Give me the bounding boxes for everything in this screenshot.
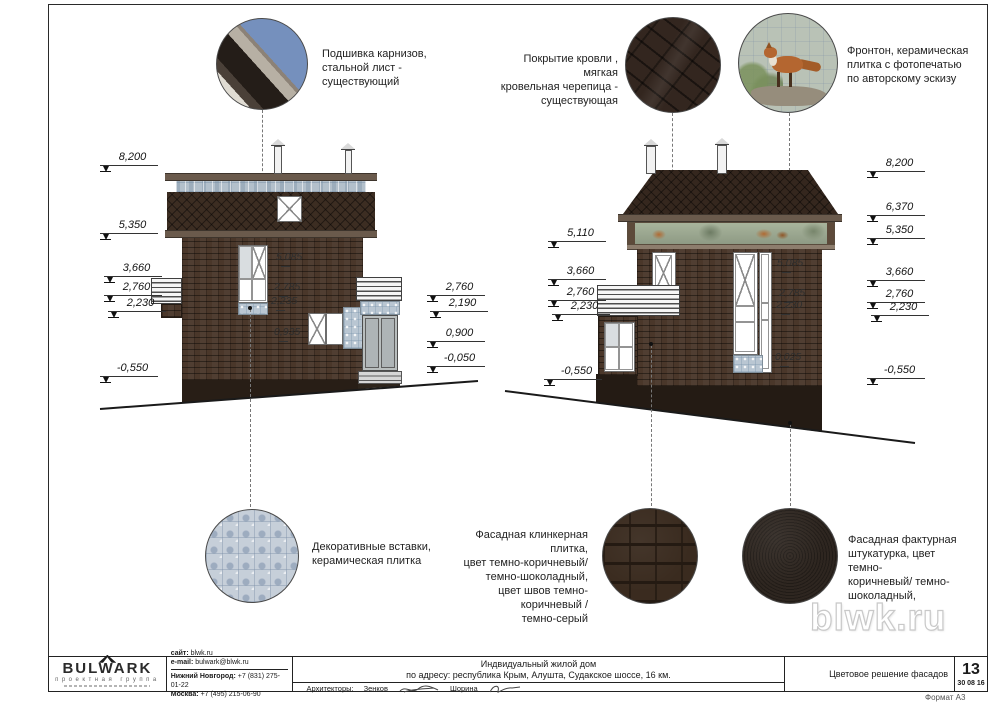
decor-tiles-photo-circle [205, 509, 299, 603]
rf-chimney-cap [715, 138, 729, 144]
elevation-value: -0,550 [544, 365, 602, 380]
door-leaf [381, 318, 395, 368]
elevation-value: 5,110 [548, 227, 606, 242]
elevation-mark: 8,200 [867, 157, 925, 172]
leader-dot [649, 342, 653, 346]
mural-end-strip [628, 223, 635, 244]
elevation-mark: -0,550 [867, 364, 925, 379]
logo-cell: BULWARK проектная группа [49, 657, 167, 691]
elevation-value: 2,760 [548, 286, 606, 301]
window-pane [605, 347, 619, 370]
elevation-mark: 2,760 [427, 281, 485, 296]
rf-tall-window [733, 252, 758, 355]
window-pane [619, 347, 633, 370]
leader-stucco [790, 424, 791, 506]
elevation-mark: 2,190 [430, 297, 488, 312]
elevation-mark: -0,550 [544, 365, 602, 380]
rf-decor-tile-panel [733, 355, 763, 373]
lf-center-window [238, 245, 268, 303]
elevation-mark: 2,230 [871, 301, 929, 316]
elevation-value: 3,660 [104, 262, 162, 277]
lf-window-sill-tile-panel [238, 303, 268, 315]
logo-subtitle: проектная группа [55, 677, 160, 683]
callout-roofing-text: Покрытие кровли , мягкая кровельная чере… [498, 52, 618, 108]
sheet-title-cell: Цветовое решение фасадов [785, 657, 955, 691]
lf-roof-pipe-cap [271, 139, 285, 145]
window-tile-insert [761, 303, 769, 320]
lf-entrance-railing [356, 277, 402, 301]
elevation-mark: 2,760 [104, 281, 162, 296]
site-value: blwk.ru [191, 650, 213, 657]
contact-site: сайт: blwk.ru [171, 649, 288, 658]
sheet-title: Цветовое решение фасадов [829, 669, 948, 679]
leader-dot [248, 306, 252, 310]
lf-roof-pipe [274, 146, 282, 174]
elevation-mark: 6,370 [867, 201, 925, 216]
site-label: сайт: [171, 650, 189, 657]
logo-text: BULWARK [62, 660, 152, 677]
clinker-brick-photo-circle [602, 508, 698, 604]
format-label: Формат А3 [925, 693, 965, 702]
elevation-value: 2,230 [108, 297, 166, 312]
mural-end-strip [827, 223, 834, 244]
stucco-photo-circle [742, 508, 838, 604]
lf-upper-band [167, 192, 375, 230]
fox-head [764, 47, 777, 58]
lf-entrance-door [362, 315, 398, 371]
callout-clinker-text: Фасадная клинкерная плитка, цвет темно-к… [458, 528, 588, 627]
lf-roof-pipe-cap [341, 143, 355, 149]
elevation-value: 2,760 [427, 281, 485, 296]
door-leaf [365, 318, 379, 368]
project-cell: Индвидуальный жилой дом по адресу: респу… [293, 657, 786, 691]
msk-label: Москва: [171, 691, 199, 698]
elevation-value: -0,050 [427, 352, 485, 367]
rf-eaves-band [618, 214, 842, 222]
elevation-mark: 3,660 [548, 265, 606, 280]
rf-chimney [646, 146, 656, 174]
elevation-mark: 0,900 [427, 327, 485, 342]
inner-dimension: 2,230 [776, 300, 802, 315]
leader-cornice [262, 110, 263, 176]
elevation-mark: 3,660 [867, 266, 925, 281]
window-casement [735, 254, 755, 306]
window-pane [619, 323, 633, 347]
window-pane [252, 279, 266, 301]
rf-pediment-mural-band [627, 222, 835, 245]
architects-label: Архитекторы: [307, 684, 354, 693]
contact-nn: Нижний Новгород: +7 (831) 275-01-22 [171, 669, 288, 690]
elevation-value: 8,200 [867, 157, 925, 172]
window-pane [735, 322, 755, 352]
window-pane [239, 279, 252, 301]
elevation-value: 2,190 [430, 297, 488, 312]
rf-roof [623, 170, 838, 214]
lf-top-cornice [165, 173, 377, 181]
drawing-sheet: Подшивка карнизов, стальной лист - сущес… [0, 0, 1000, 704]
watermark: blwk.ru [810, 597, 947, 639]
elevation-value: 5,350 [100, 219, 158, 234]
elevation-value: -0,550 [867, 364, 925, 379]
elevation-mark: 5,350 [867, 224, 925, 239]
lf-attic-window [277, 196, 302, 222]
rf-chimney [717, 145, 727, 174]
elevation-value: 5,350 [867, 224, 925, 239]
inner-dimension: 0,935 [274, 327, 300, 342]
window-tile-insert [735, 306, 755, 322]
inner-dimension: 5,085 [777, 258, 803, 273]
callout-decor-tiles-text: Декоративные вставки, керамическая плитк… [312, 540, 437, 568]
contact-email: e-mail: bulwark@blwk.ru [171, 658, 288, 667]
lf-roof-pipe [345, 150, 352, 174]
logo-tagline-rule [64, 685, 150, 688]
elevation-value: 3,660 [548, 265, 606, 280]
msk-phone: +7 (495) 215-06-90 [201, 691, 261, 698]
bulwark-logo: BULWARK [62, 661, 152, 676]
email-label: e-mail: [171, 659, 194, 666]
fox-photo-circle [738, 13, 838, 113]
callout-cornice-text: Подшивка карнизов, стальной лист - сущес… [322, 47, 437, 89]
elevation-value: 2,760 [104, 281, 162, 296]
window-casement [252, 246, 266, 279]
elevation-mark: 5,350 [100, 219, 158, 234]
sheet-number-cell: 13 30 08 16 [955, 657, 987, 691]
elevation-value: 6,370 [867, 201, 925, 216]
elevation-value: 2,230 [552, 300, 610, 315]
signature [488, 683, 522, 695]
lf-door-canopy-panel [360, 301, 400, 315]
elevation-mark: 3,660 [104, 262, 162, 277]
lf-mid-cornice [165, 230, 377, 238]
elevation-mark: 2,760 [548, 286, 606, 301]
elevation-mark: 8,200 [100, 151, 158, 166]
signature [398, 683, 440, 695]
project-title: Индвидуальный жилой дом [293, 659, 785, 670]
inner-dimension: 5,085 [276, 252, 302, 267]
elevation-value: -0,550 [100, 362, 158, 377]
fox-leg [777, 72, 780, 87]
window-pane [761, 254, 769, 303]
architect-name: Зенков [364, 684, 388, 693]
sheet-number: 13 [962, 662, 980, 678]
email-value: bulwark@blwk.ru [195, 659, 248, 666]
inner-dimension: 0,025 [775, 352, 801, 367]
architects-row: Архитекторы: Зенков Шорина [293, 682, 785, 695]
project-description: Индвидуальный жилой дом по адресу: респу… [293, 657, 785, 682]
elevation-mark: 5,110 [548, 227, 606, 242]
lf-small-casement-window [308, 313, 326, 345]
architect-name: Шорина [450, 684, 478, 693]
contact-msk: Москва: +7 (495) 215-06-90 [171, 690, 288, 699]
window-pane [605, 323, 619, 347]
leader-decor-tiles [250, 309, 251, 507]
leader-clinker [651, 345, 652, 506]
callout-pediment-text: Фронтон, керамическая плитка с фотопечат… [847, 44, 975, 86]
leader-dot [788, 421, 792, 425]
elevation-mark: -0,050 [427, 352, 485, 367]
roof-shingle-photo-circle [625, 17, 721, 113]
rf-lower-window [604, 322, 635, 372]
elevation-mark: -0,550 [100, 362, 158, 377]
elevation-value: 2,230 [871, 301, 929, 316]
title-block: BULWARK проектная группа сайт: blwk.ru e… [48, 656, 988, 692]
elevation-value: 3,660 [867, 266, 925, 281]
elevation-value: 0,900 [427, 327, 485, 342]
callout-stucco-text: Фасадная фактурная штукатурка, цвет темн… [848, 533, 963, 603]
elevation-value: 8,200 [100, 151, 158, 166]
contacts-cell: сайт: blwk.ru e-mail: bulwark@blwk.ru Ни… [167, 657, 293, 691]
window-pane [239, 246, 252, 279]
nn-label: Нижний Новгород: [171, 673, 236, 680]
lf-small-window-pane [326, 313, 343, 345]
lf-entrance-steps [358, 371, 402, 384]
rf-chimney-cap [644, 139, 658, 145]
lf-frieze-band [176, 181, 366, 192]
fox-ear [766, 42, 772, 48]
fox-circle-rock [751, 86, 827, 106]
sheet-date: 30 08 16 [957, 680, 984, 687]
inner-dimension: 2,235 [271, 296, 297, 311]
elevation-mark: 2,230 [108, 297, 166, 312]
cornice-photo-circle [216, 18, 308, 110]
elevation-mark: 2,230 [552, 300, 610, 315]
fox-leg [789, 72, 792, 87]
project-address: по адресу: республика Крым, Алушта, Суда… [293, 670, 785, 681]
